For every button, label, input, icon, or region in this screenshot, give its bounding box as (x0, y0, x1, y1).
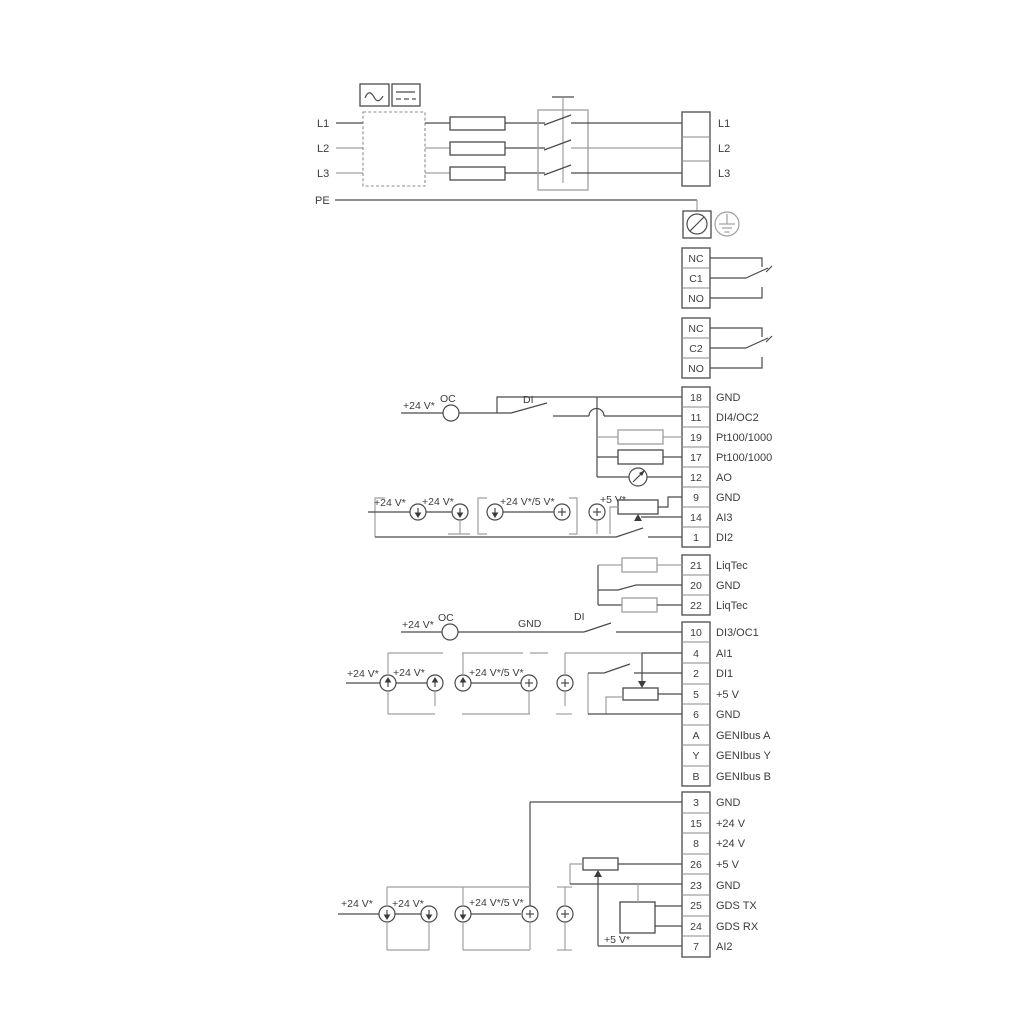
potentiometer-ai2 (583, 858, 618, 870)
terminal-23-label: GND (716, 880, 741, 892)
terminal-3-label: GND (716, 797, 741, 809)
terminal-25: 25 (690, 900, 702, 912)
terminal-14: 14 (690, 512, 702, 524)
terminal-7-label: AI2 (716, 941, 733, 953)
fuse-l3 (450, 167, 505, 180)
potentiometer-ai1 (623, 688, 658, 700)
voltage-source-icon (589, 504, 605, 520)
power-output-terminal-block: L1 L2 L3 (682, 112, 730, 186)
terminal-6: 6 (693, 709, 699, 721)
terminal-8-label: +24 V (716, 838, 746, 850)
terminal-strip-1: 18GND 11DI4/OC2 19Pt100/1000 17Pt100/100… (682, 387, 772, 547)
di3-oc1-circuit: +24 V* OC GND DI (401, 611, 682, 640)
gds-sensor-circuit: +5 V* +24 V* +24 V* +24 V*/5 V* (338, 802, 682, 950)
terminal-15-label: +24 V (716, 818, 746, 830)
wiring-diagram-page: L1 L2 L3 PE (0, 0, 1024, 1024)
power-in-l2-label: L2 (317, 143, 329, 155)
terminal-8: 8 (693, 838, 699, 850)
pe-ground-connection (335, 200, 739, 238)
fuse-l1 (450, 117, 505, 130)
gds-sensor-box (620, 902, 655, 933)
svg-text:+5 V*: +5 V* (604, 934, 630, 946)
v24-label: +24 V* (403, 400, 435, 412)
terminal-1: 1 (693, 532, 699, 544)
terminal-17-label: Pt100/1000 (716, 452, 772, 464)
terminal-14-label: AI3 (716, 512, 733, 524)
ac-dc-converter-icons (360, 84, 420, 106)
terminal-11-label: DI4/OC2 (716, 412, 759, 424)
current-source-icon (421, 906, 437, 922)
terminal-6-label: GND (716, 709, 741, 721)
di-label: DI (523, 394, 534, 406)
terminal-21-label: LiqTec (716, 560, 748, 572)
svg-text:GND: GND (518, 618, 542, 630)
terminal-12: 12 (690, 472, 702, 484)
terminal-10: 10 (690, 627, 702, 639)
open-collector-icon (442, 624, 458, 640)
terminal-18: 18 (690, 392, 702, 404)
terminal-9: 9 (693, 492, 699, 504)
earth-ground-icon (715, 212, 739, 236)
wiring-diagram: L1 L2 L3 PE (0, 0, 1024, 1024)
terminal-9-label: GND (716, 492, 741, 504)
terminal-b: B (692, 771, 699, 783)
voltage-source-icon (521, 675, 537, 691)
power-out-l1-label: L1 (718, 118, 730, 130)
terminal-26: 26 (690, 859, 702, 871)
relay1-no-label: NO (688, 293, 704, 305)
terminal-24-label: GDS RX (716, 921, 759, 933)
terminal-4: 4 (693, 648, 699, 660)
terminal-a: A (692, 730, 699, 742)
dc-symbol-box (392, 84, 420, 106)
terminal-25-label: GDS TX (716, 900, 757, 912)
relay2-no-label: NO (688, 363, 704, 375)
terminal-21: 21 (690, 560, 702, 572)
fuse-l2 (450, 142, 505, 155)
svg-text:+24 V*: +24 V* (422, 496, 454, 508)
power-in-l1-label: L1 (317, 118, 329, 130)
terminal-22: 22 (690, 600, 702, 612)
svg-text:+24 V*/5 V*: +24 V*/5 V* (469, 667, 524, 679)
terminal-2-label: DI1 (716, 668, 733, 680)
svg-text:+24 V*: +24 V* (392, 898, 424, 910)
liqtec-sensor-1 (622, 558, 657, 572)
terminal-2: 2 (693, 668, 699, 680)
main-switch (538, 97, 682, 190)
terminal-strip-2: 21LiqTec 20GND 22LiqTec (598, 555, 748, 615)
oc-label: OC (440, 393, 456, 405)
relay2-c2-label: C2 (689, 343, 703, 355)
terminal-y: Y (692, 750, 699, 762)
emc-filter-box (363, 112, 425, 186)
terminal-strip-3: 10DI3/OC1 4AI1 2DI1 5+5 V 6GND AGENIbus … (682, 622, 771, 786)
relay1-nc-label: NC (688, 253, 704, 265)
terminal-22-label: LiqTec (716, 600, 748, 612)
potentiometer-ai3 (618, 500, 658, 514)
terminal-10-label: DI3/OC1 (716, 627, 759, 639)
svg-text:+24 V*: +24 V* (402, 619, 434, 631)
terminal-b-label: GENIbus B (716, 771, 771, 783)
terminal-1-label: DI2 (716, 532, 733, 544)
relay2-nc-label: NC (688, 323, 704, 335)
power-out-l3-label: L3 (718, 168, 730, 180)
relay-1-block: NC C1 NO (682, 248, 772, 308)
power-out-l2-label: L2 (718, 143, 730, 155)
svg-text:DI: DI (574, 611, 585, 623)
terminal-5: 5 (693, 689, 699, 701)
svg-text:+24 V*/5 V*: +24 V*/5 V* (469, 897, 524, 909)
terminal-4-label: AI1 (716, 648, 733, 660)
svg-text:+24 V*: +24 V* (393, 667, 425, 679)
voltage-source-icon (554, 504, 570, 520)
terminal-18-label: GND (716, 392, 741, 404)
terminal-strip-4: 3GND 15+24 V 8+24 V 26+5 V 23GND 25GDS T… (682, 792, 759, 957)
ai3-di2-circuit: +24 V* +24 V* +24 V*/5 V* +5 V* (368, 494, 682, 537)
terminal-19: 19 (690, 432, 702, 444)
svg-text:+24 V*: +24 V* (347, 668, 379, 680)
power-in-pe-label: PE (315, 195, 330, 207)
pt100-sensor-1 (618, 430, 663, 444)
relay-2-block: NC C2 NO (682, 318, 772, 378)
terminal-5-label: +5 V (716, 689, 740, 701)
terminal-17: 17 (690, 452, 702, 464)
fuses (425, 117, 545, 180)
terminal-20-label: GND (716, 580, 741, 592)
terminal-20: 20 (690, 580, 702, 592)
ai1-di1-circuit: +24 V* +24 V* +24 V*/5 V* (346, 653, 682, 714)
terminal-15: 15 (690, 818, 702, 830)
open-collector-icon (443, 405, 459, 421)
terminal-23: 23 (690, 880, 702, 892)
svg-text:+24 V*: +24 V* (374, 497, 406, 509)
di4-oc2-circuit: +24 V* OC DI (401, 393, 682, 486)
svg-text:+24 V*: +24 V* (341, 898, 373, 910)
terminal-7: 7 (693, 941, 699, 953)
terminal-24: 24 (690, 921, 702, 933)
terminal-11: 11 (691, 412, 702, 424)
power-input-section: L1 L2 L3 PE (315, 118, 363, 207)
analog-output-meter-icon (629, 468, 647, 486)
terminal-12-label: AO (716, 472, 732, 484)
voltage-source-icon (522, 906, 538, 922)
svg-text:+24 V*/5 V*: +24 V*/5 V* (500, 496, 555, 508)
voltage-source-icon (557, 675, 573, 691)
current-source-icon (427, 675, 443, 691)
relay1-c1-label: C1 (689, 273, 703, 285)
liqtec-sensor-2 (622, 598, 657, 612)
terminal-19-label: Pt100/1000 (716, 432, 772, 444)
current-source-icon (452, 504, 468, 520)
ac-symbol-box (360, 84, 389, 106)
terminal-a-label: GENIbus A (716, 730, 771, 742)
terminal-26-label: +5 V (716, 859, 740, 871)
svg-text:OC: OC (438, 612, 454, 624)
terminal-3: 3 (693, 797, 699, 809)
voltage-source-icon (557, 906, 573, 922)
power-in-l3-label: L3 (317, 168, 329, 180)
pt100-sensor-2 (618, 450, 663, 464)
terminal-y-label: GENIbus Y (716, 750, 771, 762)
